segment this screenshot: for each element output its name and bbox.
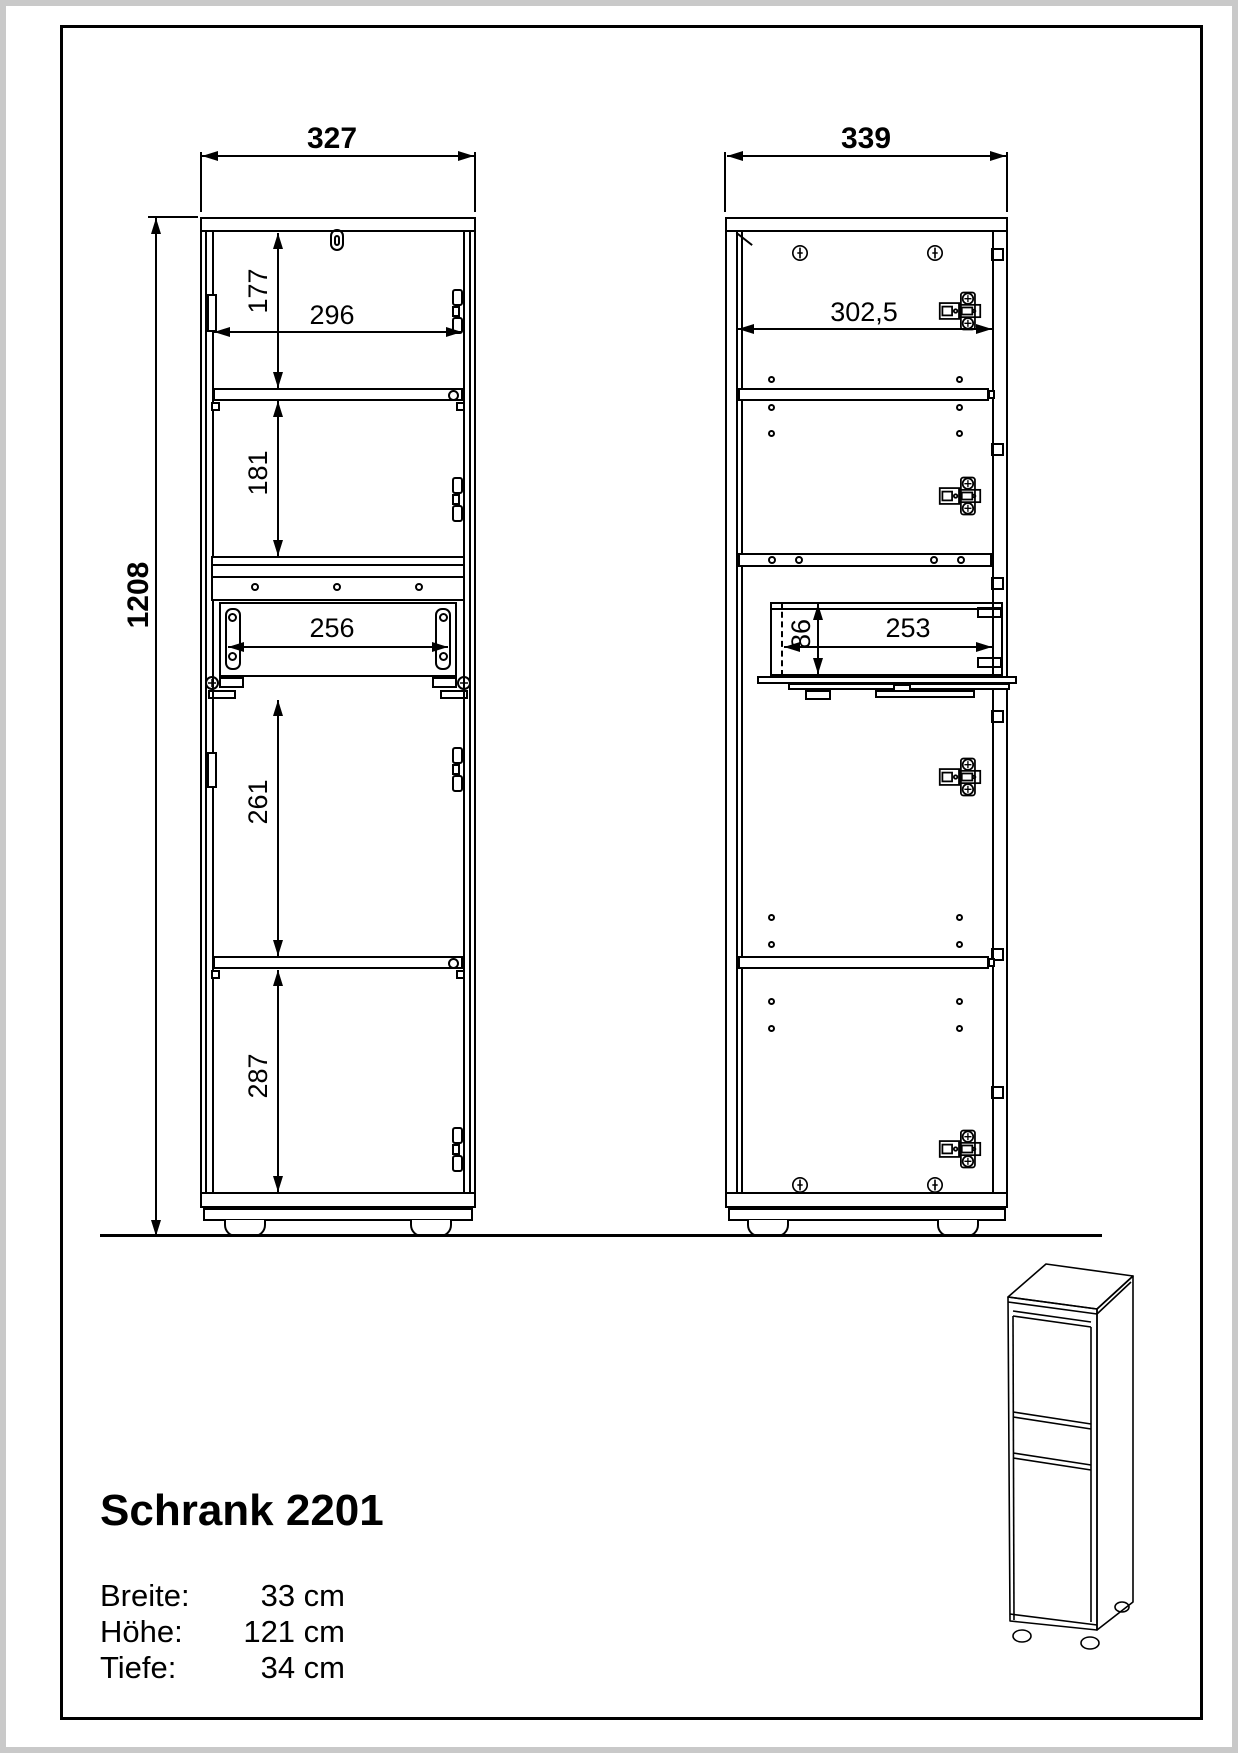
slide-bracket xyxy=(805,690,831,700)
extension-line xyxy=(1006,152,1008,212)
slide-clip xyxy=(977,657,1002,668)
spec-label: Höhe: xyxy=(100,1614,242,1650)
door-notch xyxy=(991,443,1004,456)
spec-row: Tiefe: 34 cm xyxy=(100,1650,345,1686)
slide-bracket xyxy=(893,684,911,692)
cabinet-outline xyxy=(725,217,1008,1208)
product-title: Schrank 2201 xyxy=(100,1486,384,1536)
spec-value: 121 cm xyxy=(242,1614,345,1650)
shelf xyxy=(738,956,989,969)
door-notch xyxy=(991,577,1004,590)
hinge-icon xyxy=(938,1128,982,1170)
spec-row: Höhe: 121 cm xyxy=(100,1614,345,1650)
screw-hole xyxy=(795,556,803,564)
pin-hole xyxy=(768,941,775,948)
screw-icon xyxy=(926,244,944,262)
dim-arrow-right xyxy=(990,151,1006,161)
dim-arrow-left xyxy=(784,642,800,652)
drawer-front-hidden-line xyxy=(781,602,783,676)
screw-icon xyxy=(791,1176,809,1194)
spec-label: Breite: xyxy=(100,1578,242,1614)
dim-arrow-right xyxy=(976,642,992,652)
dim-inner-width: 302,5 xyxy=(804,297,924,327)
spec-table: Breite: 33 cm Höhe: 121 cm Tiefe: 34 cm xyxy=(100,1578,345,1686)
door-notch xyxy=(991,710,1004,723)
dimension-line xyxy=(727,155,1006,157)
pin-hole xyxy=(956,404,963,411)
slide-bracket xyxy=(875,690,975,698)
shelf xyxy=(738,388,989,401)
slide-clip xyxy=(977,607,1002,618)
pin-hole xyxy=(956,1025,963,1032)
bottom-panel-line xyxy=(727,1192,1006,1194)
screw-icon xyxy=(791,244,809,262)
pin-hole xyxy=(956,941,963,948)
inner-wall-line xyxy=(736,232,738,1192)
shelf-end-cap xyxy=(988,390,995,399)
pin-hole xyxy=(768,998,775,1005)
fixed-shelf xyxy=(738,553,992,567)
screw-hole xyxy=(930,556,938,564)
pin-hole xyxy=(768,430,775,437)
pin-hole xyxy=(768,404,775,411)
spec-label: Tiefe: xyxy=(100,1650,242,1686)
top-panel-line xyxy=(727,230,1006,232)
dim-arrow-right xyxy=(976,324,992,334)
spec-value: 33 cm xyxy=(242,1578,345,1614)
page: 327 1208 177 296 xyxy=(0,0,1238,1753)
ground-line xyxy=(100,1234,1102,1237)
hinge-icon xyxy=(938,475,982,517)
dim-arrow-left xyxy=(738,324,754,334)
dim-drawer-depth: 253 xyxy=(858,613,958,643)
dimension-line xyxy=(738,328,992,330)
pin-hole xyxy=(956,376,963,383)
door-notch xyxy=(991,248,1004,261)
dim-drawer-height: 86 xyxy=(786,599,816,669)
pin-hole xyxy=(956,914,963,921)
screw-hole xyxy=(768,556,776,564)
spec-value: 34 cm xyxy=(242,1650,345,1686)
dimension-line xyxy=(784,646,992,648)
door-notch xyxy=(991,1086,1004,1099)
pin-hole xyxy=(956,430,963,437)
cabinet-3d-thumbnail xyxy=(995,1255,1140,1655)
pin-hole xyxy=(956,998,963,1005)
dim-arrow-left xyxy=(727,151,743,161)
shelf-end-cap xyxy=(988,958,995,967)
pin-hole xyxy=(768,914,775,921)
screw-hole xyxy=(957,556,965,564)
pin-hole xyxy=(768,1025,775,1032)
pin-hole xyxy=(768,376,775,383)
screw-icon xyxy=(926,1176,944,1194)
extension-line xyxy=(724,152,726,212)
back-panel-line xyxy=(741,232,743,1192)
dim-overall-width: 339 xyxy=(831,124,901,154)
spec-row: Breite: 33 cm xyxy=(100,1578,345,1614)
hinge-icon xyxy=(938,756,982,798)
